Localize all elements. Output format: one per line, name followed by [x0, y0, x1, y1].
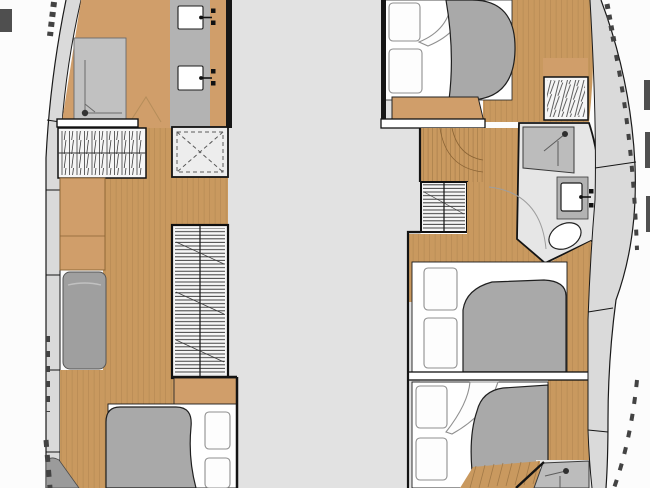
stbd-steps-planks: [420, 128, 483, 182]
port-berth-shelf: [174, 378, 237, 405]
stbd-hanging-locker: [544, 77, 588, 120]
floorplan-svg: [0, 0, 650, 488]
port-deck-hatch: [172, 127, 228, 177]
stbd-mid-duvet: [463, 280, 566, 372]
port-faucet-2-dot: [199, 76, 203, 80]
stbd-companionway-stairs: [421, 182, 467, 232]
stbd-aft-pillow-2: [416, 438, 447, 480]
stbd-fwd-pillow-1: [389, 3, 420, 41]
stbd-shower-head-icon: [562, 131, 568, 137]
port-berth-pillow-1: [205, 412, 230, 449]
stbd-fwd-bench: [392, 97, 484, 122]
port-companionway-stairs: [172, 225, 228, 378]
stbd-forward-berth: [385, 0, 515, 100]
stbd-mid-pillow-2: [424, 318, 457, 368]
port-cabinets: [60, 178, 105, 270]
stbd-hanging-locker-clothes: [547, 80, 585, 117]
stbd-aft-pillow-1: [416, 386, 447, 428]
stbd-fwd-pillow-2: [389, 49, 422, 93]
stbd-locker-shelf: [543, 58, 588, 78]
port-inner-wall: [226, 0, 232, 128]
stbd-aft-shower-head-icon: [563, 468, 569, 474]
stbd-mid-pillow-1: [424, 268, 457, 310]
port-seat-cushion: [63, 272, 106, 369]
stbd-inner-wall: [381, 0, 386, 122]
stbd-faucet-knob-b: [589, 203, 594, 208]
stbd-cabin-divider-wall: [408, 372, 600, 380]
floorplan-canvas: [0, 0, 650, 488]
port-bulkhead: [57, 119, 138, 127]
stbd-mid-berth: [412, 262, 567, 372]
port-faucet-2-knob-b: [211, 81, 216, 86]
port-faucet-1-knob-b: [211, 21, 216, 26]
port-hanging-locker: [58, 128, 146, 178]
port-berth-pillow-2: [205, 458, 230, 488]
port-faucet-1-dot: [199, 16, 203, 20]
port-aft-berth: [106, 404, 237, 488]
port-shower-tray: [74, 38, 126, 120]
port-faucet-2-knob-a: [211, 69, 216, 74]
port-shower-head-icon: [82, 110, 88, 116]
port-cabinet-block: [60, 178, 105, 270]
port-seat: [63, 272, 106, 369]
stbd-fwd-duvet: [446, 0, 515, 100]
stbd-basin: [561, 183, 582, 211]
stbd-faucet-dot: [579, 195, 583, 199]
port-berth-duvet: [106, 407, 196, 488]
port-vanity: [170, 0, 216, 128]
stbd-bulkhead: [381, 119, 485, 128]
stbd-faucet-knob-a: [589, 189, 594, 194]
port-faucet-1-knob-a: [211, 9, 216, 14]
stbd-entry-steps: [420, 128, 483, 182]
port-shower: [74, 38, 126, 120]
